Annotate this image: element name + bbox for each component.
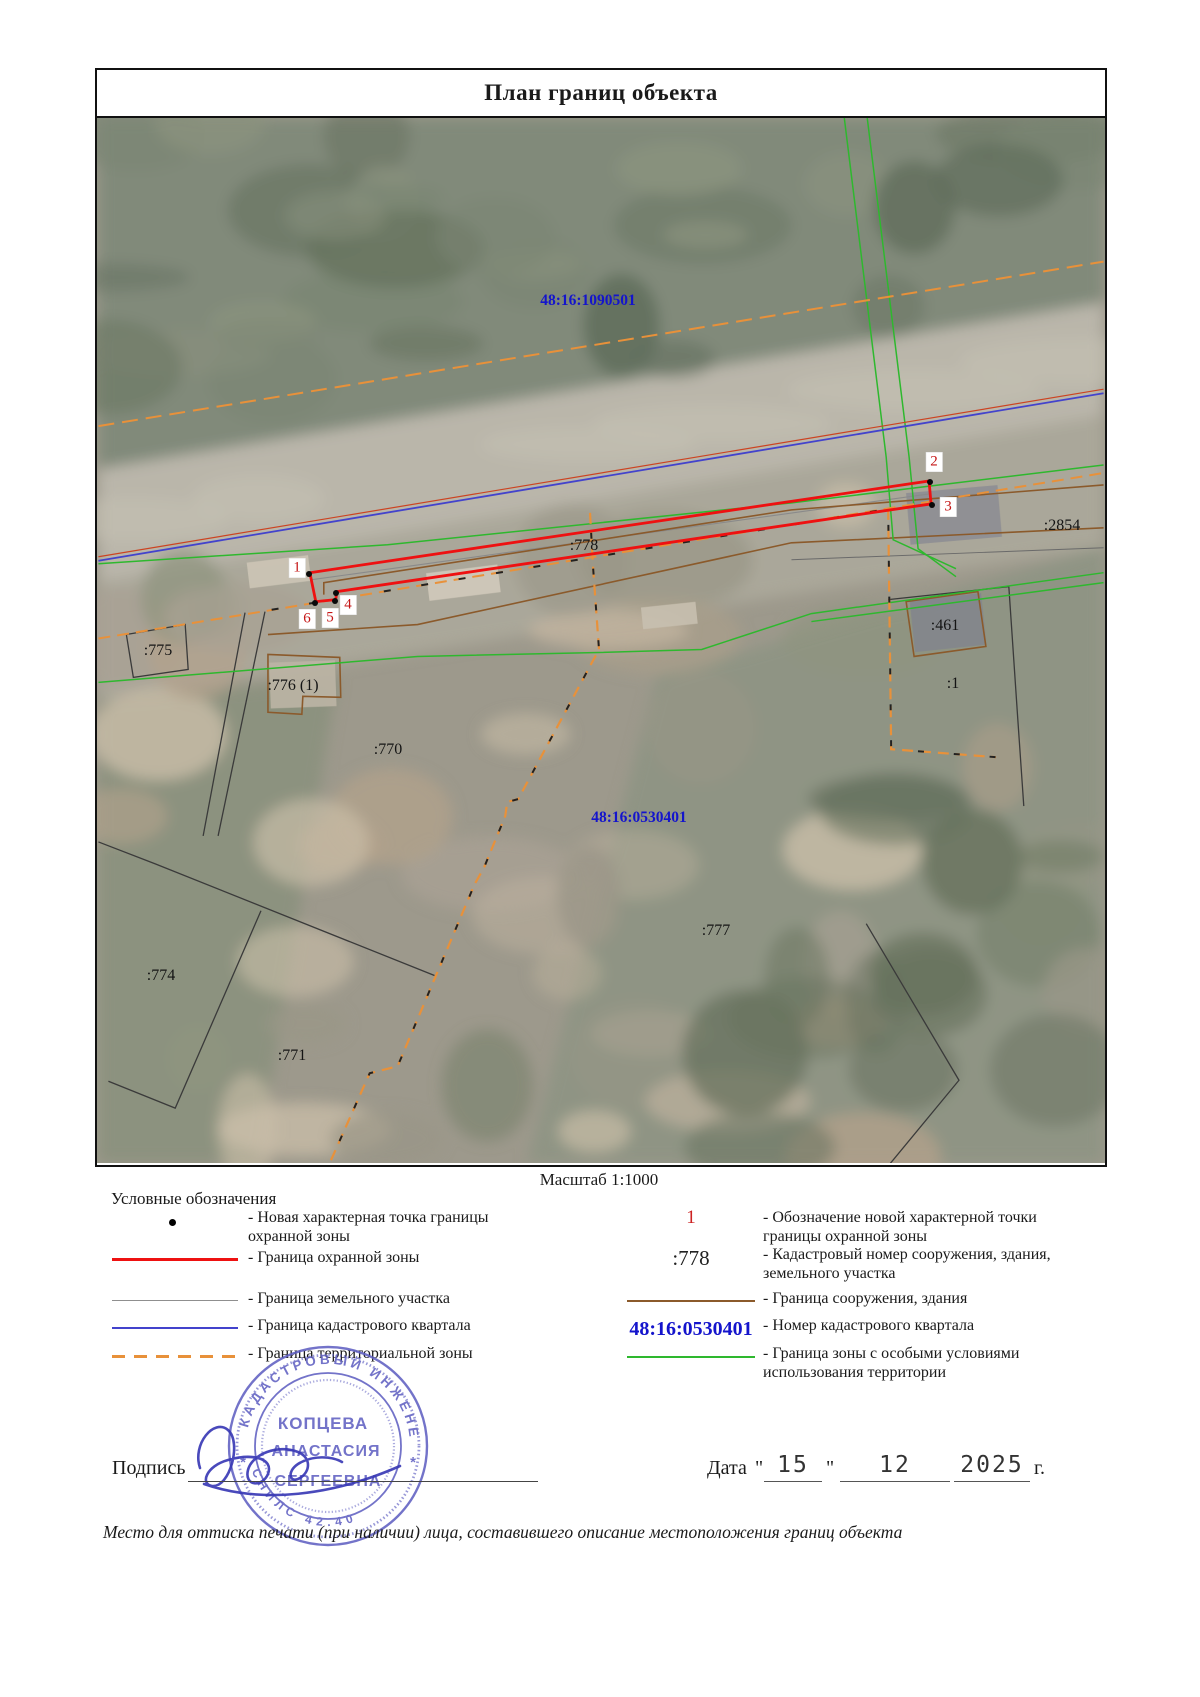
boundary-point-label: 2 [926,453,942,472]
boundary-point-label: 5 [322,609,338,628]
boundary-point-dot [306,571,312,577]
legend-point-number-symbol: 1 [627,1207,755,1229]
footer-note: Место для оттиска печати (при наличии) л… [103,1522,1043,1543]
legend-blue-line-icon [112,1327,238,1329]
boundary-point-dot [333,590,339,596]
legend-label: - Обозначение новой характерной точки гр… [763,1208,1095,1246]
date-suffix: г. [1034,1457,1045,1480]
scale-label: Масштаб 1:1000 [95,1170,1103,1190]
legend-point-dot-icon [169,1219,176,1226]
legend-label: - Граница кадастрового квартала [248,1316,540,1335]
legend-label: - Граница сооружения, здания [763,1289,1095,1308]
legend-cadastral-number-symbol: :778 [627,1246,755,1271]
map-area: 48:16:109050148:16:0530401:2854:778:775:… [97,118,1105,1163]
page: { "title": "План границ объекта", "scale… [0,0,1200,1697]
title-bar: План границ объекта [97,70,1105,118]
legend-label: - Новая характерная точка границы охранн… [248,1208,540,1246]
boundary-point-label: 3 [940,498,956,517]
legend-label: - Номер кадастрового квартала [763,1316,1095,1335]
plan-frame: План границ объекта [95,68,1107,1167]
date-close-quote: " [826,1457,834,1480]
date-open-quote: " [755,1457,763,1480]
signature-line [188,1456,538,1482]
legend-label: - Граница зоны с особыми условиями испол… [763,1344,1095,1382]
boundary-point-dot [312,600,318,606]
legend-label: - Кадастровый номер сооружения, здания, … [763,1245,1095,1283]
map-svg [97,118,1105,1163]
legend-grey-line-icon [112,1300,238,1301]
boundary-point-dot [929,502,935,508]
boundary-point-dot [332,598,338,604]
date-label: Дата [707,1457,747,1480]
legend-green-line-icon [627,1356,755,1358]
boundary-point-dot [927,479,933,485]
date-day-field: 15 [764,1452,822,1482]
boundary-point-label: 6 [299,610,315,629]
boundary-point-label: 4 [340,596,356,615]
boundary-point-label: 1 [289,559,305,578]
date-year-field: 2025 [954,1452,1030,1482]
legend-brown-line-icon [627,1300,755,1302]
signature-label: Подпись [112,1457,185,1480]
date-month-field: 12 [840,1452,950,1482]
legend-red-line-icon [112,1258,238,1261]
legend-label: - Граница земельного участка [248,1289,540,1308]
legend-quarter-number-symbol: 48:16:0530401 [627,1318,755,1341]
page-title: План границ объекта [484,80,717,106]
legend-heading: Условные обозначения [111,1189,276,1209]
legend-label: - Граница охранной зоны [248,1248,540,1267]
